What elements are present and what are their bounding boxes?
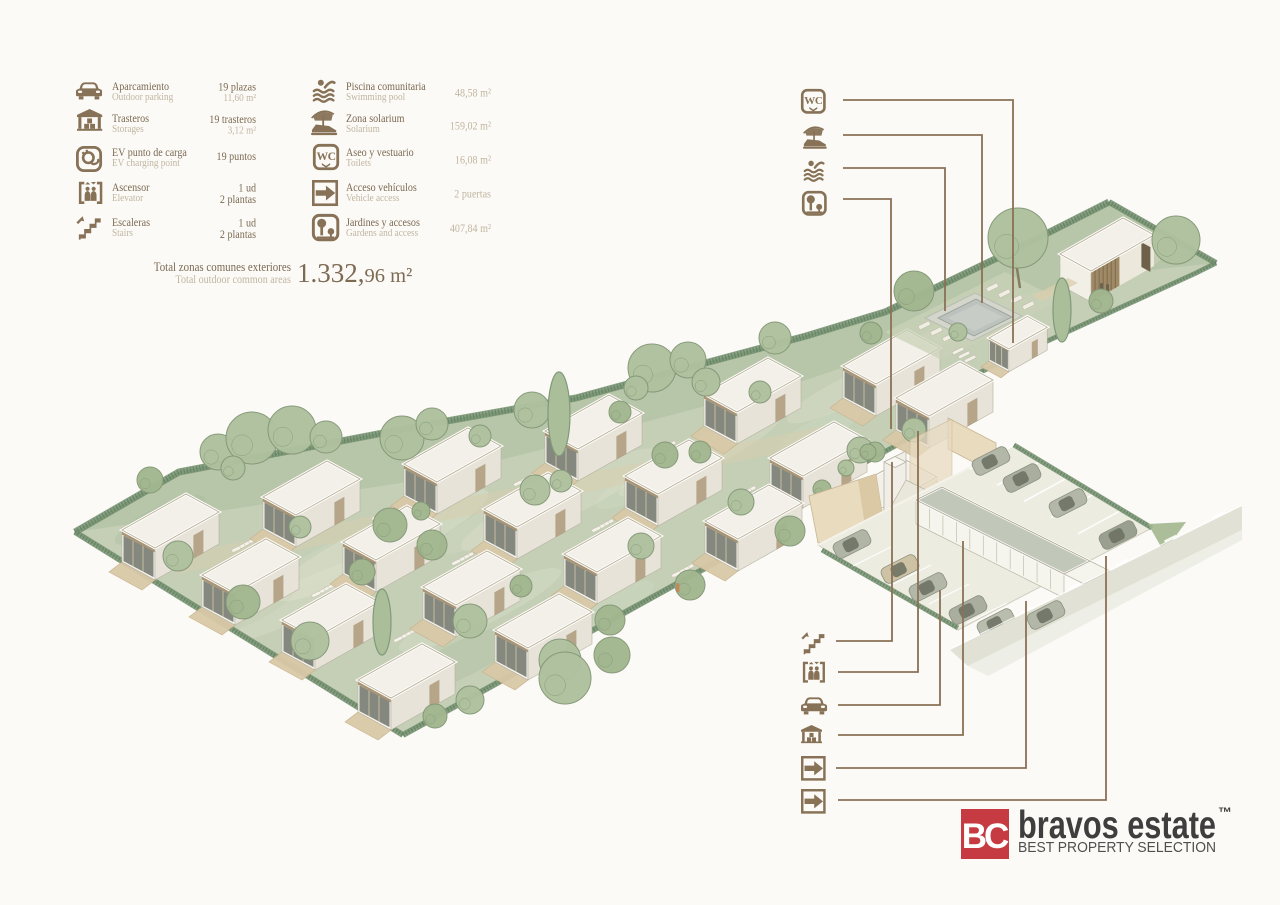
svg-text:16,08 m²: 16,08 m² — [455, 154, 492, 167]
svg-text:BC: BC — [962, 817, 1009, 856]
svg-text:Total outdoor common areas: Total outdoor common areas — [176, 273, 291, 286]
svg-text:Toilets: Toilets — [346, 157, 371, 169]
svg-text:™: ™ — [1218, 804, 1232, 820]
svg-text:Storages: Storages — [112, 123, 144, 135]
svg-text:Swimming pool: Swimming pool — [346, 91, 405, 103]
svg-text:48,58 m²: 48,58 m² — [455, 87, 492, 100]
svg-text:Solarium: Solarium — [346, 123, 380, 135]
svg-text:2 plantas: 2 plantas — [220, 228, 256, 241]
svg-text:EV charging point: EV charging point — [112, 157, 180, 169]
svg-text:2 plantas: 2 plantas — [220, 193, 256, 206]
svg-text:Vehicle access: Vehicle access — [346, 192, 400, 204]
svg-text:Elevator: Elevator — [112, 192, 144, 204]
svg-text:159,02 m²: 159,02 m² — [450, 120, 492, 133]
svg-text:Stairs: Stairs — [112, 227, 133, 239]
svg-text:Gardens and access: Gardens and access — [346, 227, 418, 239]
svg-text:WC: WC — [316, 150, 335, 163]
svg-text:3,12 m²: 3,12 m² — [228, 125, 256, 137]
svg-text:BEST PROPERTY SELECTION: BEST PROPERTY SELECTION — [1018, 840, 1216, 856]
svg-text:2 puertas: 2 puertas — [454, 188, 491, 201]
svg-text:19 puntos: 19 puntos — [217, 150, 256, 163]
svg-text:WC: WC — [804, 95, 823, 107]
svg-text:Outdoor parking: Outdoor parking — [112, 91, 173, 103]
svg-text:11,60 m²: 11,60 m² — [223, 92, 256, 104]
svg-text:Total zonas comunes exteriores: Total zonas comunes exteriores — [154, 259, 291, 274]
svg-text:407,84 m²: 407,84 m² — [450, 222, 492, 235]
